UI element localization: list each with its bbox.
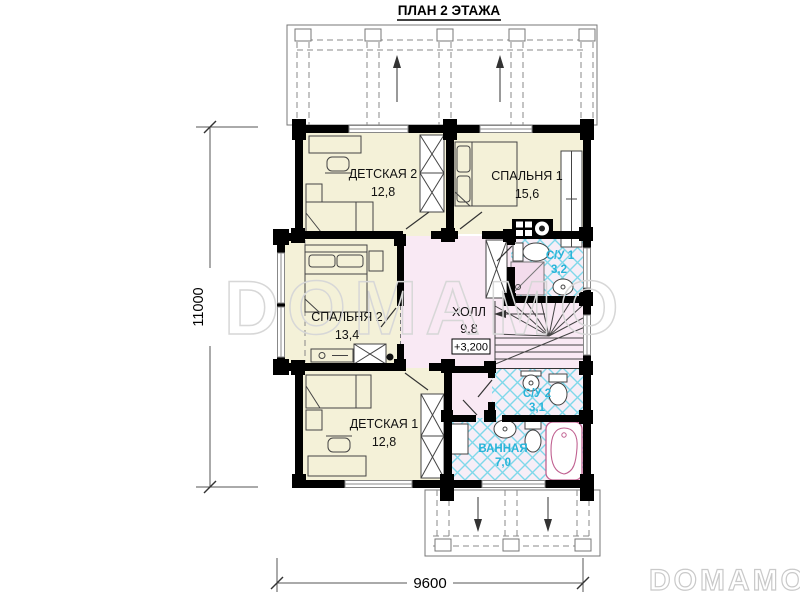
- watermark-center: DOMAMO: [224, 266, 627, 351]
- cabinet-icon: [450, 424, 468, 454]
- window-icon: [345, 481, 412, 488]
- window-icon: [349, 126, 408, 133]
- room-label-vannaya: ВАННАЯ: [478, 443, 527, 455]
- drawing-title: ПЛАН 2 ЭТАЖА: [397, 3, 501, 20]
- top-terrace: [287, 25, 597, 125]
- room-label-detskaya1: ДЕТСКАЯ 1: [350, 417, 419, 431]
- watermark-logo: DOMAMO: [649, 564, 800, 597]
- toilet-icon: [513, 243, 549, 261]
- toilet-icon: [549, 374, 567, 405]
- window-icon: [480, 126, 532, 133]
- window-icon: [482, 481, 545, 488]
- room-label-detskaya2: ДЕТСКАЯ 2: [349, 167, 418, 181]
- bathtub-icon: [546, 422, 582, 480]
- room-area-spalnya1: 15,6: [515, 187, 539, 201]
- room-label-spalnya1: СПАЛЬНЯ 1: [491, 169, 563, 183]
- room-label-su1: С/У 1: [546, 250, 575, 262]
- appliance-block-icon: [512, 219, 553, 238]
- dimension-height-value: 11000: [191, 287, 207, 326]
- sink-icon: [494, 420, 516, 438]
- dimension-horizontal: 9600: [271, 558, 589, 592]
- room-area-su2: 3,1: [529, 402, 546, 414]
- wardrobe-icon: [420, 135, 444, 212]
- floor-plan-page: ПЛАН 2 ЭТАЖА: [0, 0, 800, 600]
- dimension-width-value: 9600: [413, 575, 446, 592]
- page-title: ПЛАН 2 ЭТАЖА: [398, 3, 501, 18]
- room-area-vannaya: 7,0: [495, 457, 511, 469]
- room-label-su2: С/У 2: [523, 388, 551, 400]
- room-area-detskaya2: 12,8: [371, 185, 395, 199]
- room-area-detskaya1: 12,8: [372, 435, 396, 449]
- wardrobe-icon: [421, 394, 444, 478]
- floor-lamp-icon: [387, 354, 394, 361]
- floor-plan-drawing: ПЛАН 2 ЭТАЖА: [0, 0, 800, 600]
